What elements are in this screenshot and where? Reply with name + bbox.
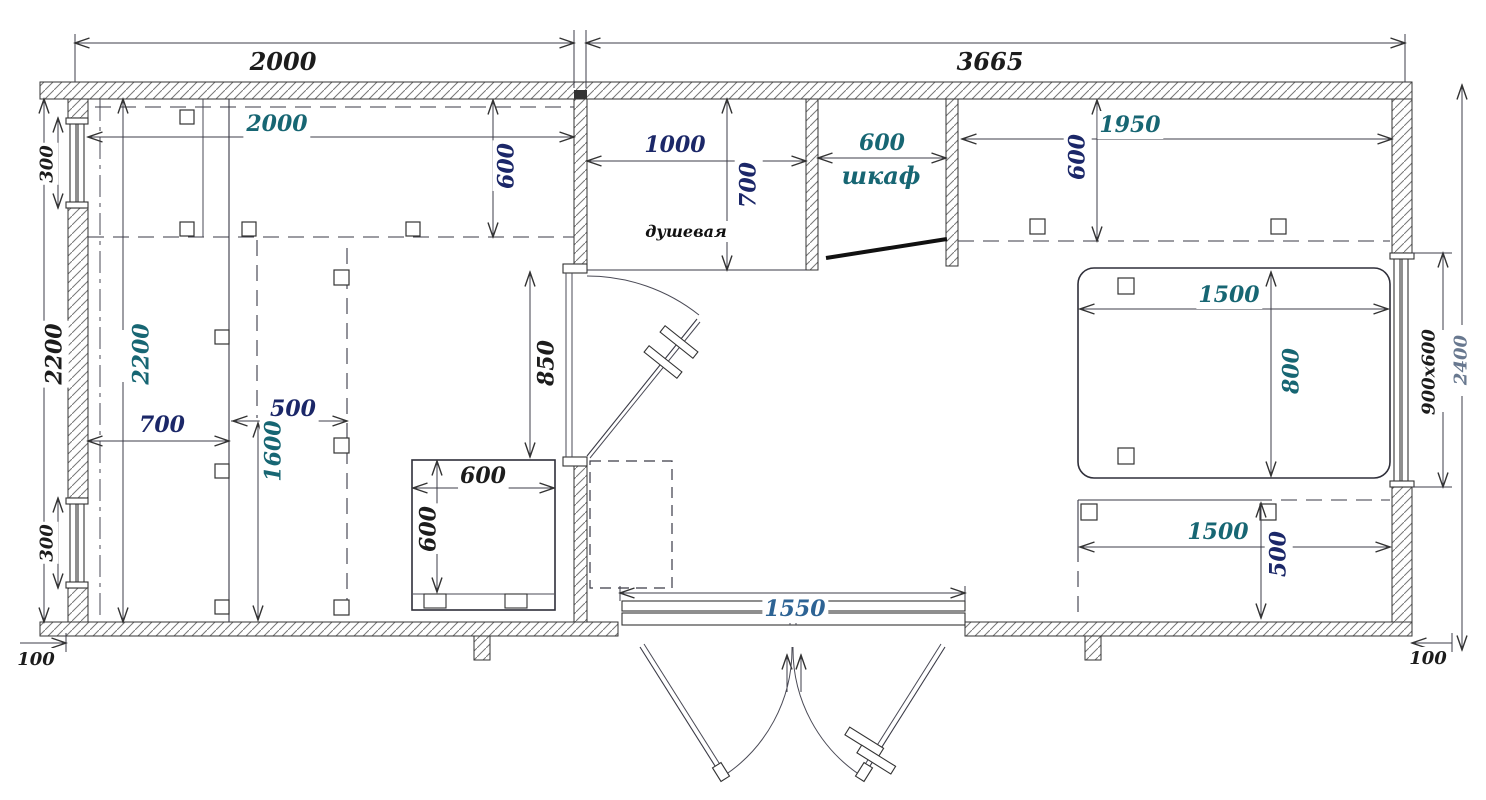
wall-center-cap [574, 90, 587, 99]
dim-label-height-right: 2400 [1450, 334, 1471, 386]
dim-label-shower-width: 1000 [644, 132, 706, 158]
dim-label-bench-depth: 500 [1266, 530, 1292, 577]
window-right [1390, 253, 1414, 487]
dim-label-height-outer: 2200 [42, 323, 68, 386]
boiler-dashed [590, 461, 672, 588]
door-jamb-top [563, 264, 587, 273]
dim-label-window-right-size: 900x600 [1418, 329, 1439, 415]
dim-label-height-inner: 2200 [129, 323, 155, 386]
door-swing-arc [587, 276, 699, 315]
dim-label-top-width-right: 3665 [957, 47, 1024, 76]
dim-label-bed-length: 1500 [1198, 282, 1260, 308]
window-left-bottom [66, 498, 88, 588]
dim-label-bench-length: 1500 [1187, 519, 1249, 545]
dim-label-shower-depth: 700 [736, 161, 762, 208]
entry-arc-left [722, 647, 792, 777]
dim-label-bay-width: 700 [139, 412, 186, 438]
dim-label-bed-width: 800 [1279, 347, 1305, 395]
wall-closet-right [946, 99, 958, 266]
wall-left-seg1 [68, 99, 88, 118]
dim-label-stove-width: 600 [460, 463, 507, 489]
entry-arc-right [793, 647, 863, 777]
floor-plan-page: 2000 3665 300 300 2200 2200 2000 600 700… [0, 0, 1486, 800]
dim-label-cabinet-depth: 1600 [261, 420, 287, 482]
door-jamb-bottom [563, 457, 587, 466]
interior-door [563, 264, 700, 466]
wall-bottom-right [965, 622, 1412, 636]
entry-door [622, 601, 965, 781]
wall-right-seg1 [1392, 99, 1412, 253]
dim-label-offset-left: 100 [17, 649, 55, 670]
right-room [958, 219, 1390, 618]
window-left-top [66, 118, 88, 208]
dim-label-shelf-left-depth: 600 [494, 142, 520, 189]
foundation-pier-right [1085, 636, 1101, 660]
foundation-pier-left [474, 636, 490, 660]
door-handle-bar2 [660, 326, 698, 358]
dim-label-door-opening: 850 [534, 339, 560, 387]
wall-center-seg1 [574, 99, 587, 272]
wall-shower-right [806, 99, 818, 270]
wall-top [40, 82, 1412, 99]
dim-label-window-left-bottom: 300 [36, 524, 57, 562]
room-label-closet: шкаф [842, 161, 921, 190]
wall-center-seg2 [574, 458, 587, 622]
wall-bottom-left [40, 622, 618, 636]
floor-plan-drawing: 2000 3665 300 300 2200 2200 2000 600 700… [0, 0, 1486, 800]
shower-room [587, 99, 806, 270]
entry-leaf-left [640, 647, 722, 777]
closet-door [826, 239, 947, 258]
dim-label-entry-width: 1550 [764, 596, 826, 622]
dim-label-window-left-top: 300 [36, 145, 57, 183]
wall-left-seg2 [68, 208, 88, 498]
bench [1078, 500, 1390, 618]
dim-label-shelf-left-width: 2000 [245, 111, 308, 137]
dim-label-shelf-right-depth: 600 [1065, 133, 1091, 180]
dim-label-closet-width: 600 [859, 130, 906, 156]
dim-label-top-width-left: 2000 [249, 47, 317, 76]
wall-right-seg2 [1392, 487, 1412, 622]
room-label-shower: душевая [645, 222, 726, 241]
wall-left-seg3 [68, 588, 88, 622]
dim-label-stove-depth: 600 [416, 505, 442, 552]
dim-label-offset-right: 100 [1409, 648, 1447, 669]
dim-label-shelf-right-width: 1950 [1099, 112, 1161, 138]
